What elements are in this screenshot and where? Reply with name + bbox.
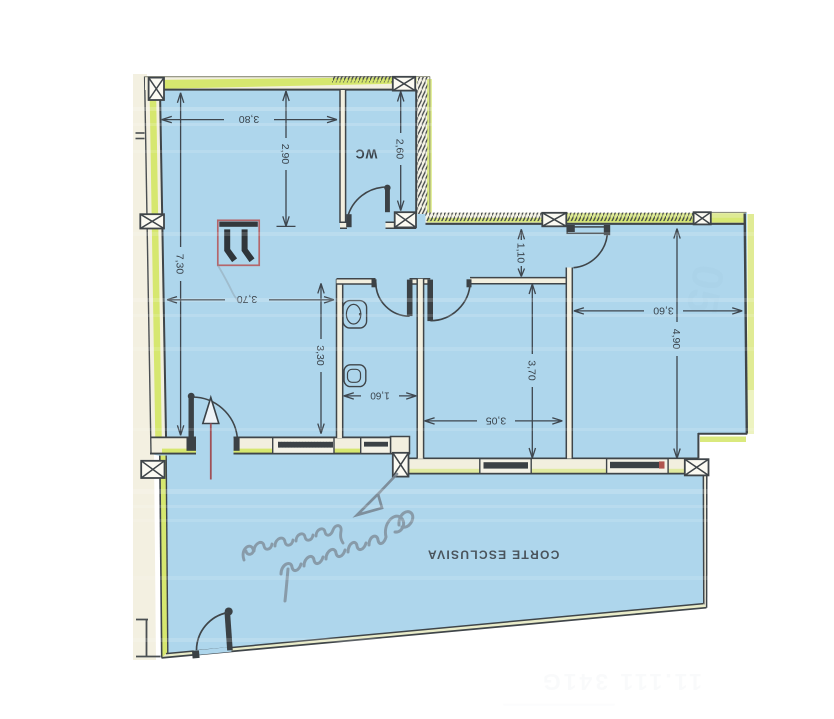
- svg-text:CORTE ESCLUSIVA: CORTE ESCLUSIVA: [427, 548, 560, 562]
- svg-text:2,90: 2,90: [279, 144, 291, 165]
- svg-text:7,30: 7,30: [174, 254, 186, 275]
- svg-text:4,90: 4,90: [670, 329, 682, 350]
- svg-text:3,70: 3,70: [525, 360, 537, 381]
- svg-text:11.111 341G: 11.111 341G: [540, 669, 702, 695]
- svg-text:1,10: 1,10: [514, 243, 526, 264]
- svg-text:1,60: 1,60: [370, 389, 390, 400]
- svg-text:WC: WC: [355, 147, 378, 161]
- svg-text:2,60: 2,60: [394, 139, 406, 160]
- svg-text:05: 05: [676, 261, 733, 318]
- svg-text:3,05: 3,05: [486, 414, 507, 426]
